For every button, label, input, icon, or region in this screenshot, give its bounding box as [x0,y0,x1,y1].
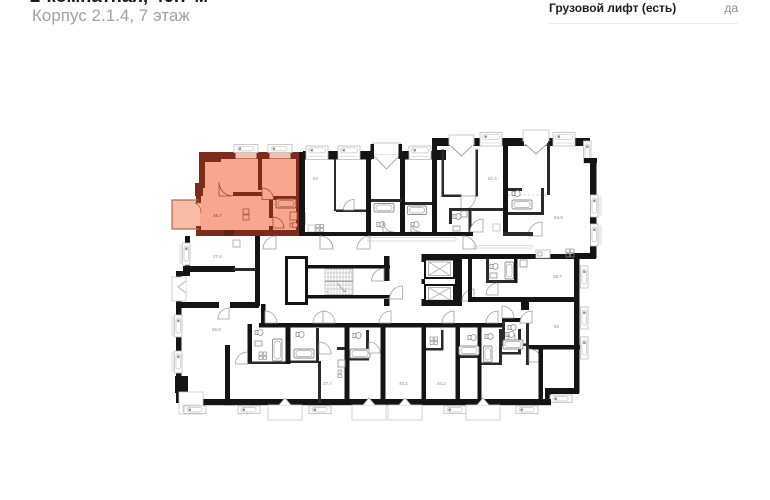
svg-text:34.2: 34.2 [437,381,446,386]
svg-text:37.6: 37.6 [213,254,222,259]
svg-text:54: 54 [313,176,319,181]
svg-text:62.4: 62.4 [488,176,497,181]
svg-text:54.9: 54.9 [554,215,563,220]
svg-text:28.7: 28.7 [553,274,562,279]
svg-text:60: 60 [554,324,560,329]
svg-text:40.2: 40.2 [399,381,408,386]
svg-text:45.7: 45.7 [213,213,222,218]
svg-text:37.7: 37.7 [323,381,332,386]
svg-text:56.6: 56.6 [212,327,221,332]
